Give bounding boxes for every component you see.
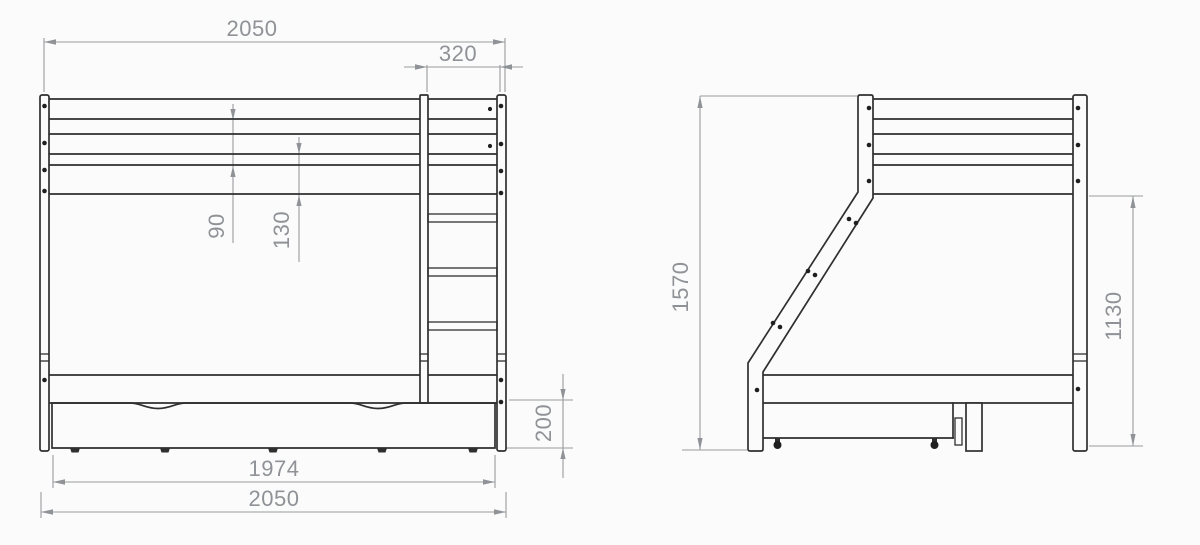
front-guard-rails	[49, 99, 497, 194]
dim-total-width-top-label: 2050	[227, 16, 278, 41]
side-view: 1570 1130	[668, 95, 1143, 451]
dim-drawer-width-label: 1974	[249, 456, 300, 481]
dim-total-width-top: 2050	[44, 16, 505, 92]
dim-total-width-bottom-label: 2050	[249, 486, 300, 511]
side-drawer	[763, 403, 962, 449]
ladder-rung	[428, 268, 497, 276]
dim-upper-frame-height-label: 1130	[1101, 291, 1126, 340]
support-leg	[966, 403, 982, 451]
ladder-rung	[428, 322, 497, 330]
front-ladder	[420, 95, 497, 403]
front-dimensions: 2050 320 90 13	[41, 16, 573, 518]
drawer-glide	[468, 448, 478, 453]
side-lower-frame	[763, 375, 1073, 403]
side-bed-structure	[748, 95, 1087, 451]
side-angled-post	[748, 95, 873, 451]
side-screws	[755, 106, 1081, 393]
side-guard-rails	[873, 99, 1073, 194]
dim-drawer-width: 1974	[53, 455, 495, 488]
side-dimensions: 1570 1130	[668, 96, 1143, 450]
drawer-glide	[160, 448, 170, 453]
front-drawer	[52, 403, 495, 453]
ladder-rung	[428, 214, 497, 222]
dim-rail-spacing-upper-label: 90	[204, 213, 229, 238]
front-right-post	[497, 95, 506, 451]
drawer-glide	[70, 448, 80, 453]
drawer-glide	[268, 448, 278, 453]
caster-wheel	[774, 438, 782, 449]
dim-ladder-width-label: 320	[439, 41, 477, 66]
side-right-post	[1073, 95, 1087, 451]
drawer-stop-bracket	[955, 418, 962, 445]
front-bed-structure	[40, 95, 506, 453]
drawer-glide	[377, 448, 387, 453]
dim-drawer-height-label: 200	[531, 404, 556, 442]
caster-wheel	[931, 438, 939, 449]
ladder-stile	[420, 95, 428, 403]
front-left-post	[40, 95, 49, 451]
dim-rail-spacing-lower: 130	[269, 137, 302, 262]
front-screws	[42, 104, 503, 405]
dim-rail-spacing-upper: 90	[204, 104, 236, 243]
dim-total-width-bottom: 2050	[41, 486, 506, 518]
front-view: 2050 320 90 13	[40, 16, 573, 518]
technical-drawing-page: 2050 320 90 13	[0, 0, 1200, 545]
dim-rail-spacing-lower-label: 130	[269, 211, 294, 249]
dim-total-height-label: 1570	[668, 262, 693, 313]
front-joint-marks	[40, 354, 506, 361]
dim-drawer-height: 200	[499, 374, 573, 478]
dim-upper-frame-height: 1130	[1089, 196, 1143, 446]
front-lower-frame	[49, 375, 497, 403]
technical-drawing-canvas: 2050 320 90 13	[0, 0, 1200, 545]
